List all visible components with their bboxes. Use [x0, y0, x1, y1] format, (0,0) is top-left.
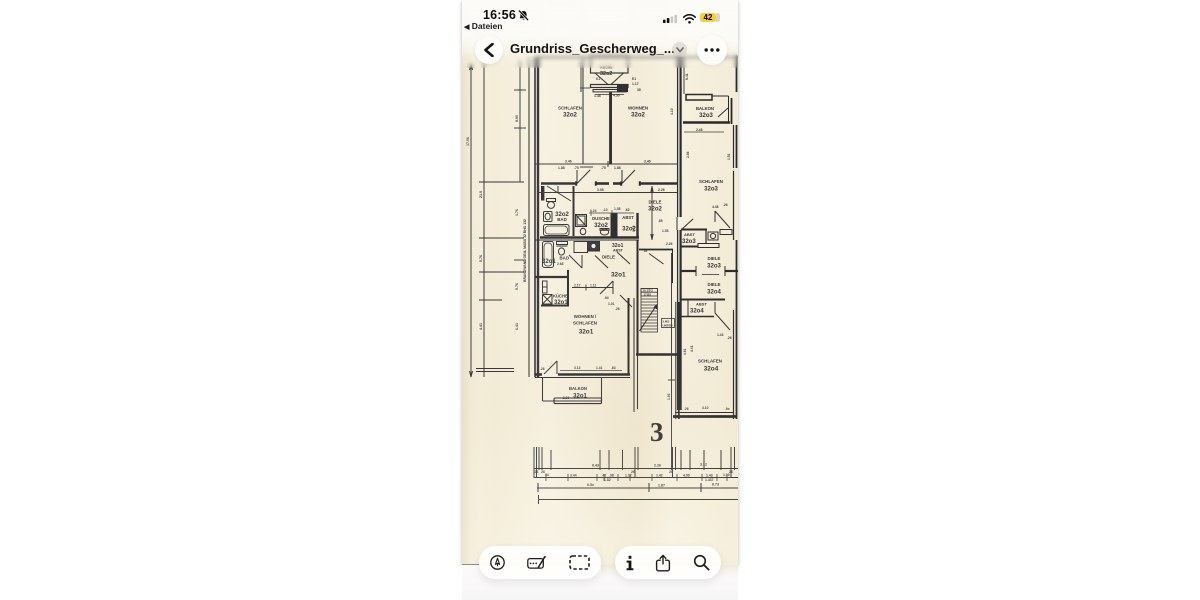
svg-text:SCHLAFEN: SCHLAFEN [698, 359, 722, 364]
svg-text:ABST: ABST [622, 215, 634, 220]
svg-text:BALKON: BALKON [569, 386, 587, 391]
svg-text:32o4: 32o4 [704, 366, 719, 373]
svg-text:4.99: 4.99 [683, 474, 690, 478]
svg-text:3.10: 3.10 [702, 406, 709, 410]
svg-text:3.98: 3.98 [597, 188, 604, 192]
svg-text:.26: .26 [727, 336, 732, 340]
svg-text:4.41: 4.41 [479, 323, 483, 330]
svg-text:2.26: 2.26 [658, 188, 665, 192]
svg-text:3.46: 3.46 [565, 160, 572, 164]
svg-text:2.86: 2.86 [686, 151, 690, 158]
svg-text:UNTEN: UNTEN [663, 324, 673, 328]
svg-text:BRANDWAND GEM. MABS 32 BHO 132: BRANDWAND GEM. MABS 32 BHO 132 [523, 219, 527, 282]
svg-text:.26: .26 [540, 367, 545, 371]
svg-text:ABST: ABST [696, 302, 707, 307]
svg-text:32o2: 32o2 [648, 207, 662, 213]
svg-text:8.73: 8.73 [712, 483, 719, 487]
svg-text:32o4: 32o4 [707, 290, 721, 296]
svg-text:SCHLAFEN: SCHLAFEN [558, 106, 582, 111]
svg-text:BAD: BAD [557, 217, 567, 222]
svg-text:17.06: 17.06 [466, 137, 470, 146]
svg-text:5.76: 5.76 [479, 255, 483, 262]
svg-text:26: 26 [669, 470, 673, 474]
svg-text:21.5: 21.5 [479, 191, 483, 198]
svg-text:ABST: ABST [684, 232, 695, 237]
svg-text:1.51: 1.51 [727, 153, 731, 160]
svg-text:BALKON: BALKON [696, 106, 714, 111]
svg-text:4.50: 4.50 [613, 94, 620, 98]
svg-text:.94: .94 [604, 296, 609, 300]
svg-text:5.76: 5.76 [515, 283, 519, 290]
svg-text:2.26: 2.26 [654, 464, 661, 468]
svg-text:1.42: 1.42 [656, 474, 663, 478]
svg-text:4.48: 4.48 [712, 205, 719, 209]
svg-text:6.5x: 6.5x [587, 483, 594, 487]
svg-text:1.17: 1.17 [632, 82, 639, 86]
svg-text:32o3: 32o3 [707, 264, 721, 270]
svg-text:3: 3 [650, 417, 664, 447]
svg-text:WOHNEN /: WOHNEN / [574, 314, 597, 319]
svg-text:.75: .75 [574, 166, 579, 170]
svg-text:1.11: 1.11 [590, 284, 596, 288]
svg-text:32o1: 32o1 [542, 259, 556, 265]
svg-text:32o2: 32o2 [563, 113, 577, 119]
svg-text:8.41: 8.41 [685, 73, 689, 80]
svg-text:.75: .75 [601, 166, 606, 170]
svg-text:1.76: 1.76 [515, 209, 519, 216]
svg-text:3.12: 3.12 [700, 463, 707, 467]
svg-text:32o1: 32o1 [573, 394, 587, 400]
svg-text:32o1: 32o1 [554, 300, 568, 306]
svg-text:4.41: 4.41 [690, 345, 694, 352]
svg-text:SCHLAFEN: SCHLAFEN [573, 321, 597, 326]
svg-text:1.87: 1.87 [658, 484, 665, 488]
svg-text:.9x: .9x [725, 407, 730, 411]
svg-text:.26: .26 [723, 203, 728, 207]
svg-text:1.437: 1.437 [705, 478, 714, 482]
svg-text:1.41: 1.41 [596, 366, 603, 370]
svg-text:94: 94 [545, 473, 549, 477]
svg-text:8.90: 8.90 [515, 115, 519, 122]
svg-text:1.35: 1.35 [662, 229, 669, 233]
svg-text:2.68: 2.68 [557, 262, 564, 266]
svg-text:1.10: 1.10 [723, 473, 730, 477]
svg-text:32o4: 32o4 [690, 309, 704, 315]
svg-text:3.44: 3.44 [570, 474, 577, 478]
svg-text:1.93: 1.93 [667, 393, 671, 400]
svg-text:KÜCHE: KÜCHE [553, 294, 568, 299]
svg-text:WOHNEN: WOHNEN [628, 106, 648, 111]
svg-text:1.43: 1.43 [717, 333, 724, 337]
svg-text:.26: .26 [684, 407, 689, 411]
svg-text:.63: .63 [611, 366, 616, 370]
svg-text:.85: .85 [658, 219, 663, 223]
svg-text:SCHLAFEN: SCHLAFEN [699, 179, 723, 184]
svg-text:17|25: 17|25 [644, 293, 652, 297]
svg-text:26: 26 [535, 470, 539, 474]
svg-text:DIELE: DIELE [649, 200, 662, 205]
svg-text:E1: E1 [632, 77, 636, 81]
svg-text:32o2: 32o2 [631, 113, 645, 119]
svg-text:32o3: 32o3 [704, 187, 718, 193]
svg-text:2.26: 2.26 [666, 242, 673, 246]
svg-text:ABST: ABST [613, 249, 624, 253]
svg-text:3.46: 3.46 [644, 160, 651, 164]
svg-text:DUSCHE: DUSCHE [592, 216, 610, 221]
svg-text:DIELE: DIELE [708, 256, 721, 261]
svg-text:4.61: 4.61 [683, 348, 687, 355]
svg-text:DIELE: DIELE [602, 255, 615, 260]
svg-text:32o3: 32o3 [682, 239, 696, 245]
svg-text:DIELE: DIELE [708, 282, 721, 287]
svg-text:8.43: 8.43 [592, 464, 599, 468]
svg-text:1.82: 1.82 [604, 478, 611, 482]
svg-text:1.88: 1.88 [558, 166, 565, 170]
svg-text:.62: .62 [625, 208, 630, 212]
svg-text:32o2: 32o2 [600, 71, 612, 77]
svg-text:4.10: 4.10 [670, 108, 674, 115]
svg-text:1.12: 1.12 [625, 474, 632, 478]
svg-text:32o3: 32o3 [699, 113, 713, 119]
svg-text:.26: .26 [615, 307, 620, 311]
svg-text:1.88: 1.88 [614, 166, 621, 170]
svg-text:6.41: 6.41 [515, 323, 519, 330]
svg-text:1.38: 1.38 [614, 207, 621, 211]
svg-text:32o1: 32o1 [611, 272, 626, 279]
svg-text:1.48: 1.48 [594, 94, 601, 98]
svg-text:2.17: 2.17 [574, 284, 581, 288]
svg-text:K1: K1 [596, 77, 600, 81]
svg-text:3.13: 3.13 [574, 366, 581, 370]
svg-text:.10: .10 [603, 208, 608, 212]
svg-text:BAD: BAD [560, 256, 570, 261]
svg-text:1.01: 1.01 [608, 302, 615, 306]
svg-text:2.48: 2.48 [696, 128, 703, 132]
svg-text:32o1: 32o1 [579, 329, 594, 336]
svg-text:38: 38 [637, 88, 641, 92]
svg-text:1.70: 1.70 [632, 225, 636, 232]
